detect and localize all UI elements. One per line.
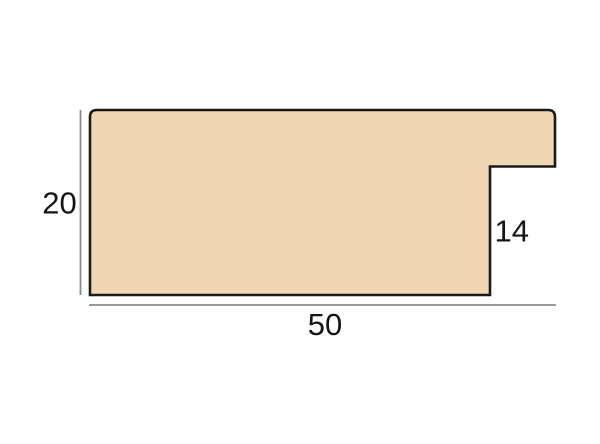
svg-text:20: 20 [42,186,76,221]
svg-text:50: 50 [308,307,342,342]
svg-text:14: 14 [494,214,528,249]
